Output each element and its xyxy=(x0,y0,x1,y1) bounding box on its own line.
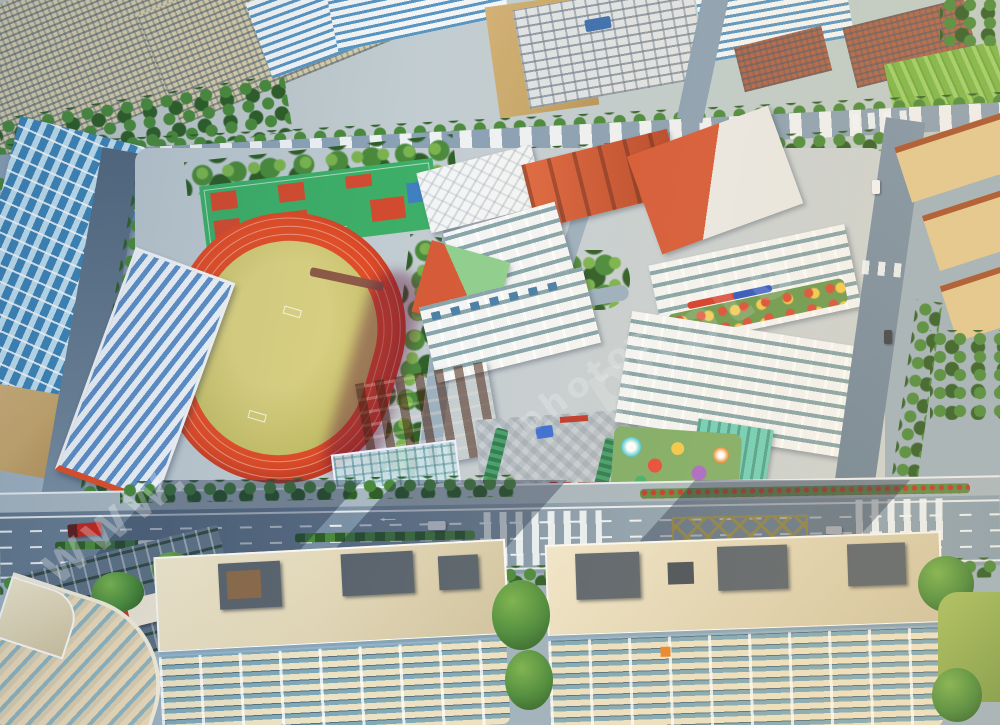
playground-equipment xyxy=(691,465,707,481)
tower-b-facade xyxy=(548,627,943,725)
roof-equipment xyxy=(575,552,641,600)
court-key xyxy=(370,196,406,222)
tree-cluster xyxy=(505,650,553,710)
roof-equipment xyxy=(847,542,906,586)
roof-equipment xyxy=(341,551,415,597)
roof-equipment xyxy=(438,554,480,590)
playground-equipment xyxy=(621,436,642,457)
aerial-photo: WWW. photos photo xyxy=(0,0,1000,725)
white-car xyxy=(872,180,880,194)
tower-a xyxy=(153,539,510,725)
trees-east xyxy=(930,330,1000,420)
tree-cluster xyxy=(492,580,550,650)
tower-b xyxy=(545,531,944,725)
trees-ne xyxy=(940,0,1000,46)
playground-equipment xyxy=(671,442,685,456)
tree-cluster xyxy=(932,668,982,722)
orange-balcony-panel xyxy=(660,647,670,657)
playground-equipment xyxy=(712,447,729,464)
roof-garden-patch xyxy=(226,570,261,600)
roof-equipment xyxy=(717,544,788,590)
playground-equipment xyxy=(648,458,663,473)
roof-vent xyxy=(667,562,694,585)
dark-car xyxy=(884,330,892,344)
